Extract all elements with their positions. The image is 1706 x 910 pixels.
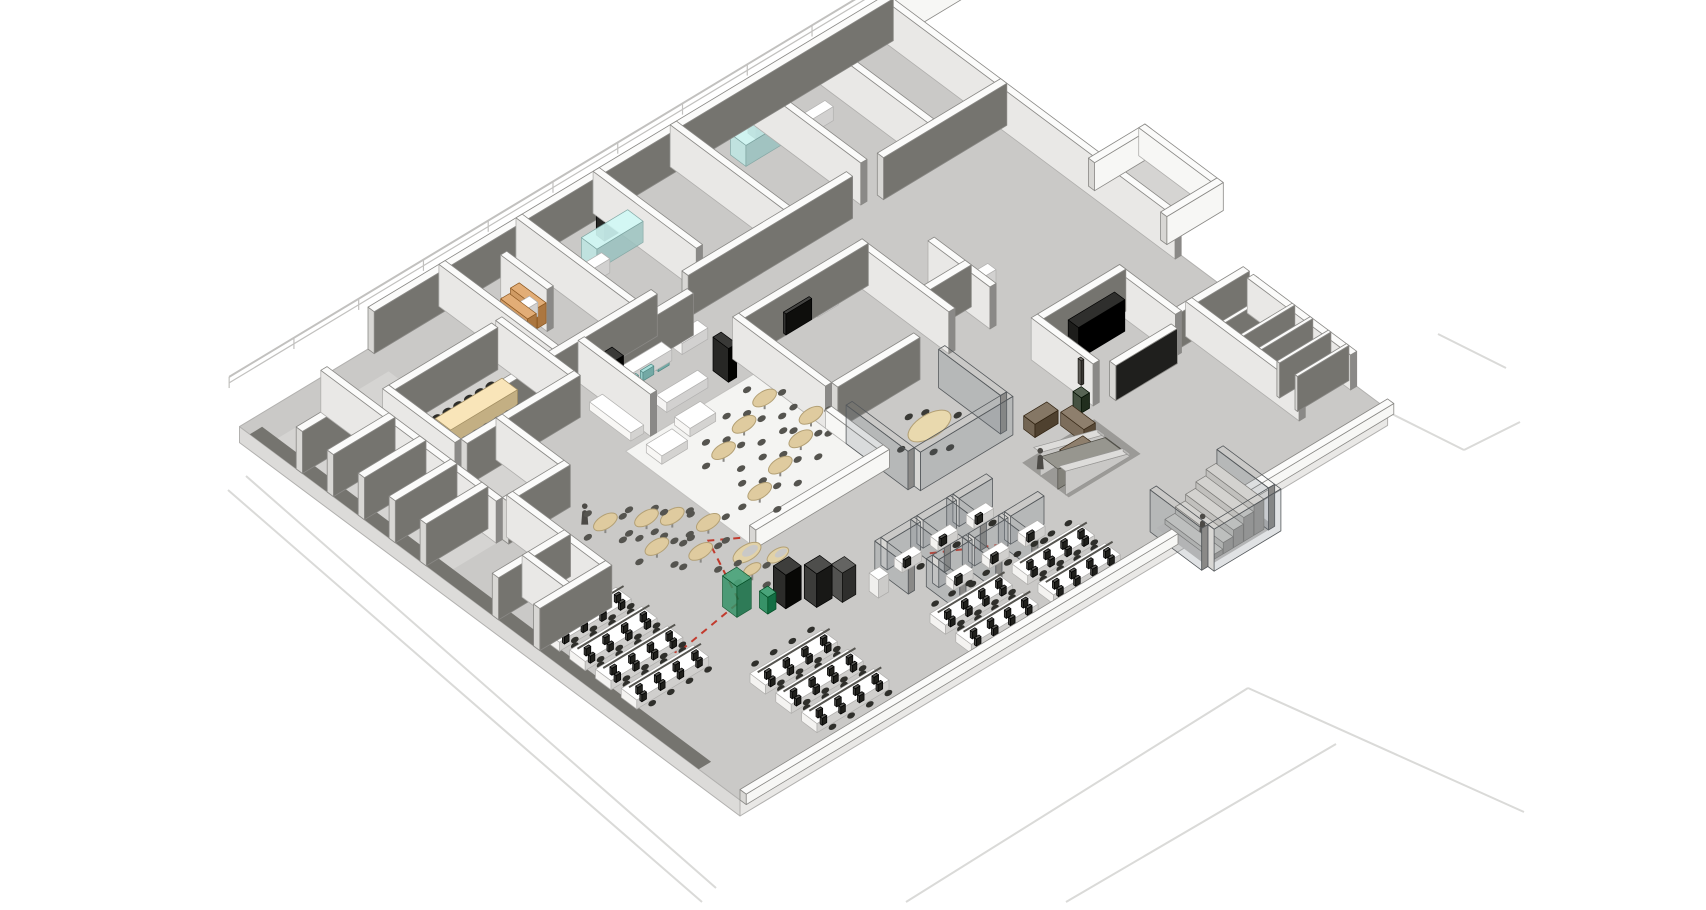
context-line: [906, 688, 1248, 902]
oval-room-glass-cap: [914, 448, 920, 491]
person-figure-head: [1037, 448, 1043, 454]
wall-toilet-cell-cap: [358, 473, 364, 520]
context-line: [1248, 688, 1524, 812]
wall-left-room-cap: [492, 573, 498, 620]
printer: [869, 567, 889, 598]
wall-office-divider-cap: [861, 159, 867, 205]
scene-root: [228, 0, 1524, 902]
storage-stall-partition-cap: [1277, 361, 1280, 398]
floorplan-canvas: [0, 0, 1706, 910]
storage-stall-partition-cap: [1295, 375, 1298, 412]
context-line: [1066, 744, 1336, 902]
person-figure: [1037, 455, 1044, 470]
wall-top-edge-cap: [368, 307, 374, 354]
phone-booth-green: [723, 567, 752, 617]
person-figure: [1037, 448, 1044, 469]
tv-panel-left: [784, 312, 787, 335]
wall-toilet-cell-cap: [389, 496, 395, 543]
wall-toilet-cell-cap: [296, 427, 302, 474]
person-figure-head: [582, 503, 588, 509]
office-floorplan-3d-rendering: [0, 0, 1706, 910]
context-line: [1392, 414, 1464, 450]
wall-av-room-left-cap: [1093, 360, 1099, 406]
oval-room-glass-cap: [908, 448, 914, 490]
wall-toilet-cell-cap: [420, 519, 426, 566]
wall-mid-right-edge-cap: [1351, 351, 1357, 390]
slat-rack-left: [1078, 359, 1081, 386]
tall-cabinet: [831, 557, 856, 603]
wall-left-room-cap: [534, 604, 540, 651]
context-line: [1438, 334, 1506, 368]
av-room-dark-opening-cap: [1110, 361, 1116, 401]
context-line: [1438, 334, 1506, 368]
stairwell-glass-cap: [1202, 525, 1208, 571]
wall-toilet-cell-cap: [327, 450, 333, 497]
context-line: [906, 688, 1248, 902]
context-line: [1464, 422, 1520, 450]
vestibule-wall-cap: [1161, 212, 1167, 245]
wall-meeting-right-cap: [949, 308, 955, 354]
wall-toilet-spine-cap: [496, 498, 502, 544]
vestibule-wall-cap: [1088, 158, 1094, 191]
tall-cabinet: [773, 557, 801, 609]
wall-mid-room-cap: [990, 283, 996, 329]
wall-wing-corridor-cap: [877, 153, 883, 200]
tall-cabinet: [804, 555, 832, 607]
context-line: [1464, 422, 1520, 450]
wall-kitchen-left-cap: [650, 391, 656, 437]
slat-rack-right: [1081, 359, 1084, 385]
green-bin: [760, 586, 777, 614]
wall-landing-side-cap: [547, 286, 553, 332]
context-line: [1392, 414, 1464, 450]
context-line: [1248, 688, 1524, 812]
slat-rack: [1078, 357, 1084, 385]
stairwell-glass-cap: [1208, 525, 1214, 572]
person-figure-head: [1200, 514, 1206, 520]
context-line: [1066, 744, 1336, 902]
